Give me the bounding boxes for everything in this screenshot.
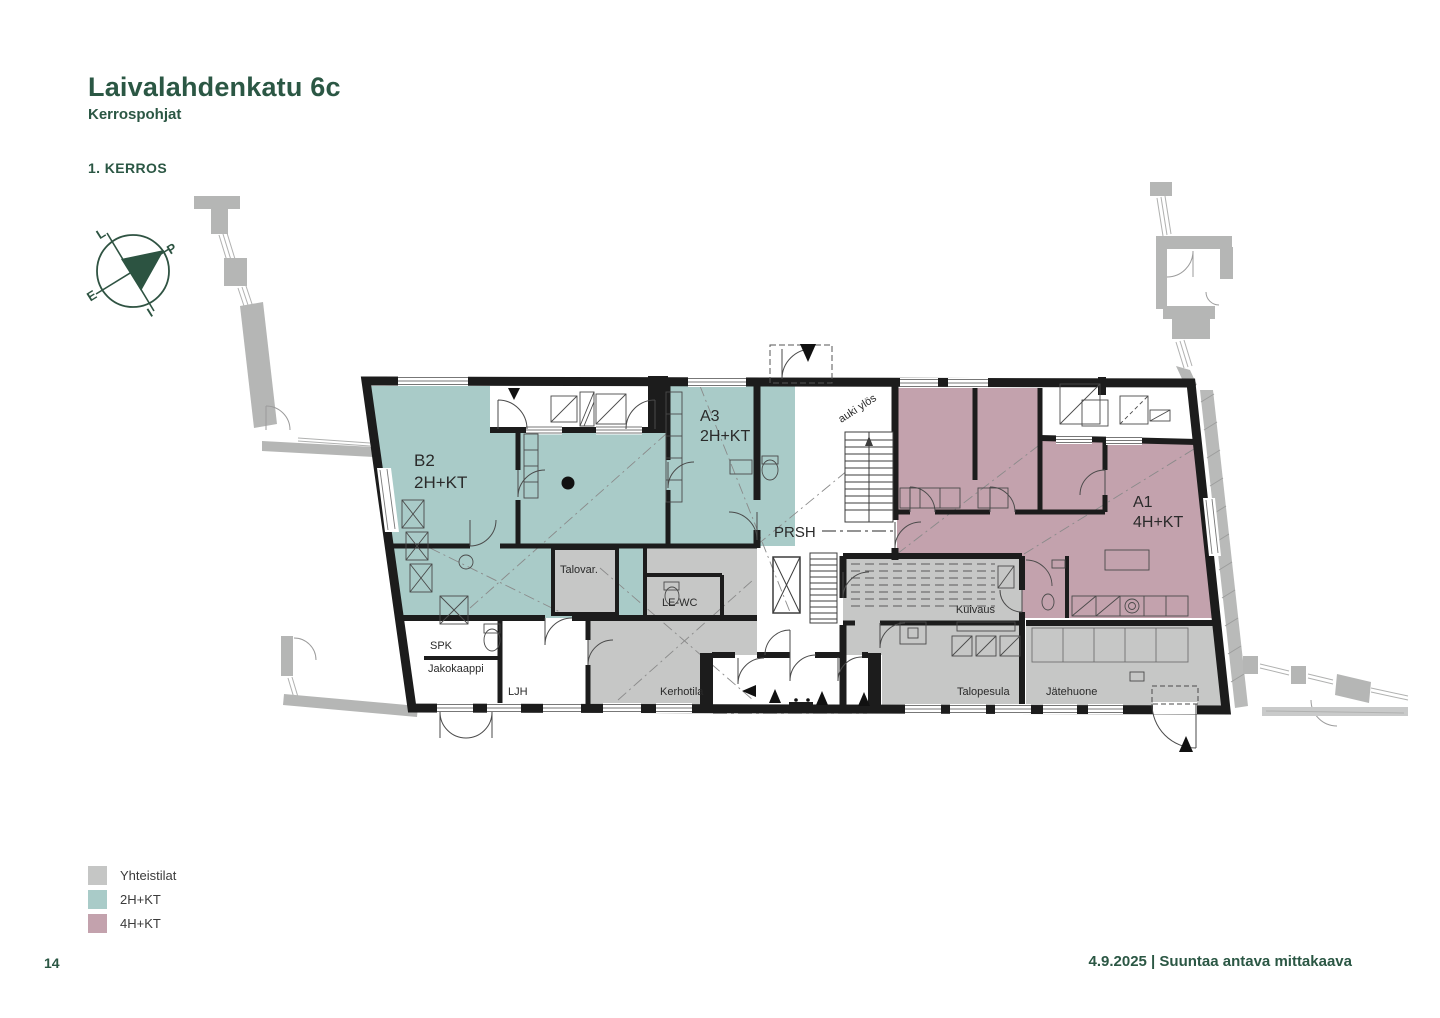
floor-plan: L P E I <box>0 0 1440 1018</box>
legend-label: 4H+KT <box>120 916 161 931</box>
apartment-label-a3-type: 2H+KT <box>700 428 750 445</box>
room-label-kuivaus: Kuivaus <box>956 604 996 616</box>
room-label-jatehuone: Jätehuone <box>1046 686 1097 698</box>
compass-needle <box>121 250 164 291</box>
building-fills <box>366 374 1226 712</box>
room-label-ljh: LJH <box>508 686 528 698</box>
compass-south: E <box>84 287 100 304</box>
compass-west: L <box>93 225 108 242</box>
legend-label: 2H+KT <box>120 892 161 907</box>
structural-column <box>562 477 575 490</box>
room-label-kerhotila: Kerhotila <box>660 686 704 698</box>
page-number: 14 <box>44 955 60 971</box>
compass: L P E I <box>84 225 180 320</box>
legend-item-2hkt: 2H+KT <box>88 890 176 909</box>
room-label-talovar: Talovar. <box>560 564 598 576</box>
legend-swatch-4hkt <box>88 914 107 933</box>
compass-north: P <box>164 240 180 257</box>
apartment-label-a1-type: 4H+KT <box>1133 514 1183 531</box>
legend-swatch-common <box>88 866 107 885</box>
legend: Yhteistilat 2H+KT 4H+KT <box>88 866 176 938</box>
page: { "header": { "title": "Laivalahdenkatu … <box>0 0 1440 1018</box>
room-label-lewc: LE-WC <box>662 597 698 609</box>
legend-item-4hkt: 4H+KT <box>88 914 176 933</box>
legend-swatch-2hkt <box>88 890 107 909</box>
apartment-label-a3-id: A3 <box>700 408 720 425</box>
room-label-spk: SPK <box>430 640 453 652</box>
apartment-label-a1-id: A1 <box>1133 494 1153 511</box>
entrance-arrow-bottom-right <box>1179 736 1193 752</box>
legend-label: Yhteistilat <box>120 868 176 883</box>
room-talovar-area <box>553 548 617 614</box>
room-label-prsh: PRSH <box>774 524 816 541</box>
room-kuivaus-area <box>843 556 1022 623</box>
entrance-arrow-top <box>800 344 816 362</box>
footer-note: 4.9.2025 | Suuntaa antava mittakaava <box>1088 953 1352 970</box>
apartment-label-b2-id: B2 <box>414 451 435 470</box>
compass-east: I <box>144 305 155 320</box>
apartment-label-b2-type: 2H+KT <box>414 473 467 492</box>
legend-item-yhteistilat: Yhteistilat <box>88 866 176 885</box>
room-label-talopesula: Talopesula <box>957 686 1010 698</box>
room-label-jakokaappi: Jakokaappi <box>428 663 484 675</box>
